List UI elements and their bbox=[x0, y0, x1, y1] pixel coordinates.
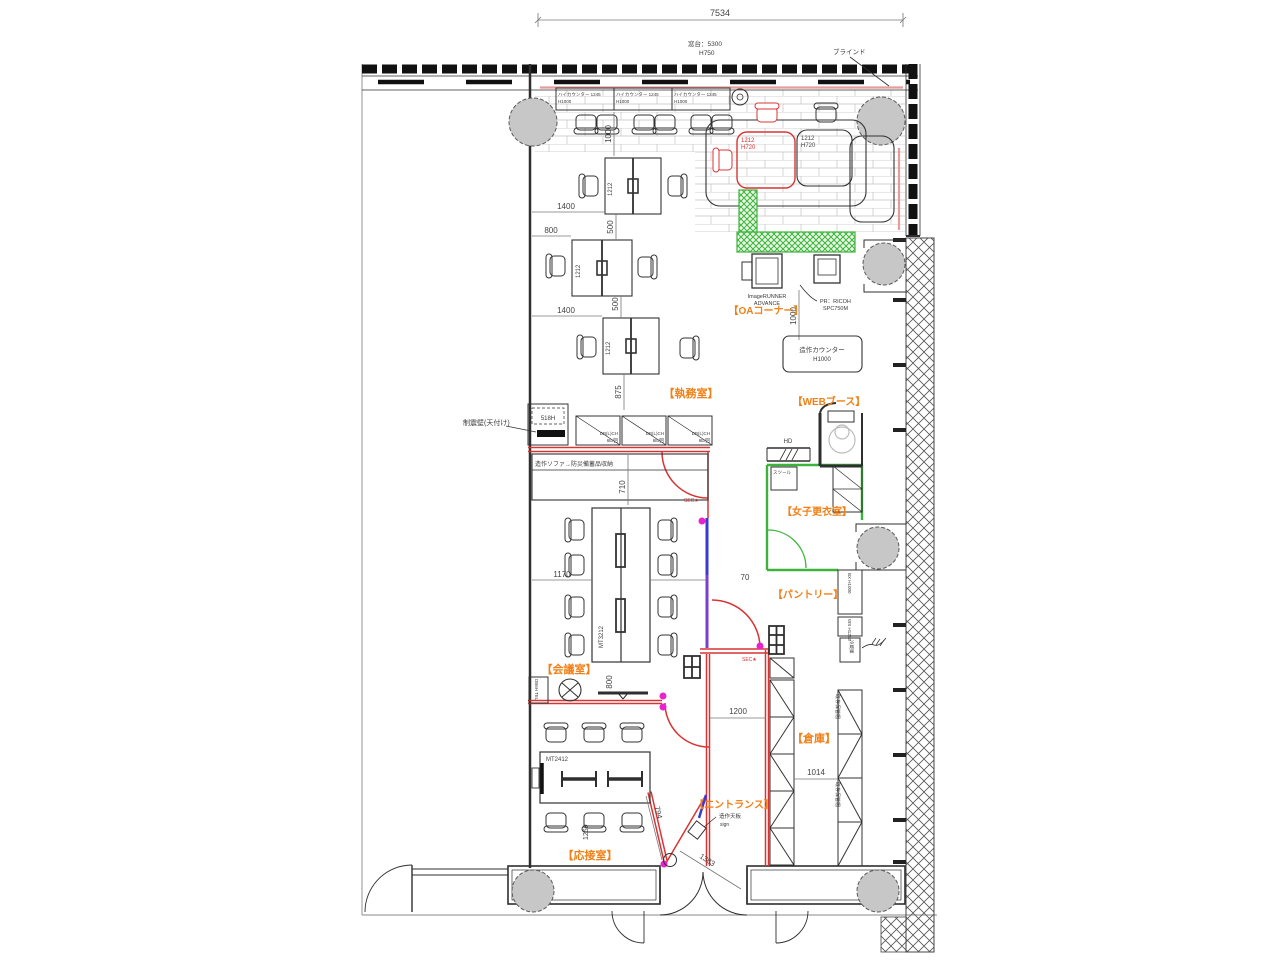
damper-wall-label: 制震壁(天付け) bbox=[463, 418, 510, 427]
desk-island: 1212 bbox=[546, 240, 657, 296]
sign-label: sign bbox=[720, 822, 729, 828]
sofa-label: 造作ソファ→防災備蓄品収納 bbox=[535, 460, 613, 468]
hi-counter-h: H1000 bbox=[616, 99, 630, 104]
column-icon bbox=[857, 97, 905, 145]
hi-counter-label: ハイカウンター 1245 bbox=[674, 91, 717, 98]
tel-box-label: DB6H TEL bbox=[534, 679, 539, 701]
desk-size-label: 1212 bbox=[576, 264, 582, 278]
zosaku-counter: 造作カウンター H1000 bbox=[783, 336, 862, 372]
dim-label: 800 bbox=[544, 226, 558, 235]
window-sill-label: 窓台：5300 bbox=[688, 39, 722, 48]
printer-label: PR：RICOH bbox=[820, 299, 851, 305]
door-bottom-left bbox=[365, 865, 412, 912]
floor-plan-canvas: SEC★ SEC★ スツール HD bbox=[0, 0, 1280, 960]
printer-label: SPC750M bbox=[823, 306, 848, 312]
fridge-label: 冷蔵庫 bbox=[848, 640, 855, 654]
hi-counter-label: ハイカウンター 1245 bbox=[616, 91, 659, 98]
hd-label: HD bbox=[784, 439, 793, 445]
dim-label: 1383 bbox=[698, 852, 717, 869]
dim-label: 1170 bbox=[553, 570, 571, 579]
column-icon bbox=[512, 870, 554, 912]
room-label-womens-locker: 【女子更衣室】 bbox=[782, 505, 852, 518]
room-label-storage: 【倉庫】 bbox=[792, 731, 836, 745]
dim-7534-label: 7534 bbox=[710, 8, 730, 18]
room-label-pantry: 【パントリー】 bbox=[773, 588, 844, 601]
table-height: H720 bbox=[741, 145, 756, 151]
column-icon bbox=[509, 98, 557, 146]
table-height: H720 bbox=[801, 143, 816, 149]
booth-chair bbox=[829, 427, 855, 453]
dim-label: 500 bbox=[611, 297, 620, 311]
storage-shelves: 既存保管棚 既存保管棚 bbox=[684, 626, 862, 866]
cabinet-518: 518H bbox=[528, 404, 568, 445]
table-model-label: MT2412 bbox=[546, 757, 569, 763]
locker-label: DB(L)CH bbox=[646, 431, 664, 436]
room-label-meeting: 【会議室】 bbox=[542, 662, 597, 676]
hi-counter-h: H1000 bbox=[674, 99, 688, 104]
web-booth bbox=[820, 403, 862, 466]
column-icon bbox=[863, 243, 905, 285]
blind-label: ブラインド bbox=[833, 47, 866, 56]
pantry-box-label: BX H1000 bbox=[847, 573, 852, 594]
floor-plan-drawing: SEC★ SEC★ スツール HD bbox=[0, 0, 1280, 960]
dim-label: 1250 bbox=[583, 824, 590, 840]
dim-label: 1200 bbox=[729, 707, 747, 716]
table-size: 1212 bbox=[741, 138, 755, 144]
stool-label: スツール bbox=[773, 470, 791, 475]
desk-size-label: 1212 bbox=[606, 341, 612, 355]
dim-label: 800 bbox=[605, 675, 614, 689]
room-label-oa-corner: 【OAコーナー】 bbox=[729, 304, 804, 317]
hi-counter-h: H1000 bbox=[558, 99, 572, 104]
room-label-reception: 【応接室】 bbox=[563, 848, 618, 862]
dim-label: 710 bbox=[618, 480, 627, 494]
copier-label: ImageRUNNER bbox=[748, 294, 787, 300]
shelf-label: 既存保管棚 bbox=[834, 782, 841, 807]
room-label-entrance: 【エントランス】 bbox=[694, 798, 774, 811]
locker-label: DB(L)CH bbox=[692, 431, 710, 436]
locker-label: DB(L)CH bbox=[600, 431, 618, 436]
window-sill-height: H750 bbox=[699, 50, 715, 57]
hanger-rack: HD bbox=[767, 439, 810, 461]
reception-room-furniture: MT2412 1250 bbox=[532, 723, 650, 840]
sec-label: SEC★ bbox=[684, 498, 699, 504]
table-model-label: MT3212 bbox=[599, 625, 605, 648]
double-door bbox=[660, 868, 747, 915]
desk-island: 1212 bbox=[577, 318, 699, 374]
desk-size-label: 1212 bbox=[608, 182, 614, 196]
locker-cabinet bbox=[833, 466, 862, 512]
hi-counter-label: ハイカウンター 1245 bbox=[558, 91, 601, 98]
dim-label: 500 bbox=[606, 220, 615, 234]
door-swings-bottom bbox=[612, 911, 808, 943]
sec-label: SEC★ bbox=[742, 657, 757, 663]
locker-units: DB(L)CH 6E/回 DB(L)CH 6E/回 DB(L)CH 6E/回 bbox=[576, 416, 712, 445]
dim-label: 875 bbox=[614, 385, 623, 399]
cabinet-label: 518H bbox=[541, 416, 555, 422]
tenban-label: 造作天板 bbox=[719, 812, 742, 820]
existing-wall-hatched bbox=[856, 238, 934, 952]
womens-locker-room: スツール HD bbox=[767, 439, 862, 570]
room-label-office: 【執務室】 bbox=[664, 386, 719, 400]
counter-label: 造作カウンター bbox=[799, 345, 845, 354]
room-label-web-booth: 【WEBブース】 bbox=[793, 395, 866, 408]
counter-height: H1000 bbox=[813, 357, 831, 363]
damper-wall-icon bbox=[537, 430, 565, 437]
column-icon bbox=[857, 870, 899, 912]
locker-room-door bbox=[768, 530, 806, 568]
table-size: 1212 bbox=[801, 136, 815, 142]
pantry-fixtures: BX H1000 WS H1263 冷蔵庫 bbox=[838, 570, 886, 662]
sign-stand bbox=[688, 821, 706, 839]
column-icon bbox=[857, 527, 899, 569]
dim-label: 1000 bbox=[604, 125, 613, 143]
dim-label: 1014 bbox=[807, 768, 825, 777]
shelf-label: 既存保管棚 bbox=[834, 694, 841, 719]
dim-label: 1400 bbox=[557, 306, 575, 315]
dim-label: 70 bbox=[741, 573, 750, 582]
security-sensor-dots bbox=[660, 518, 764, 868]
dim-label: 1400 bbox=[557, 202, 575, 211]
desk-island: 1212 bbox=[579, 158, 687, 214]
